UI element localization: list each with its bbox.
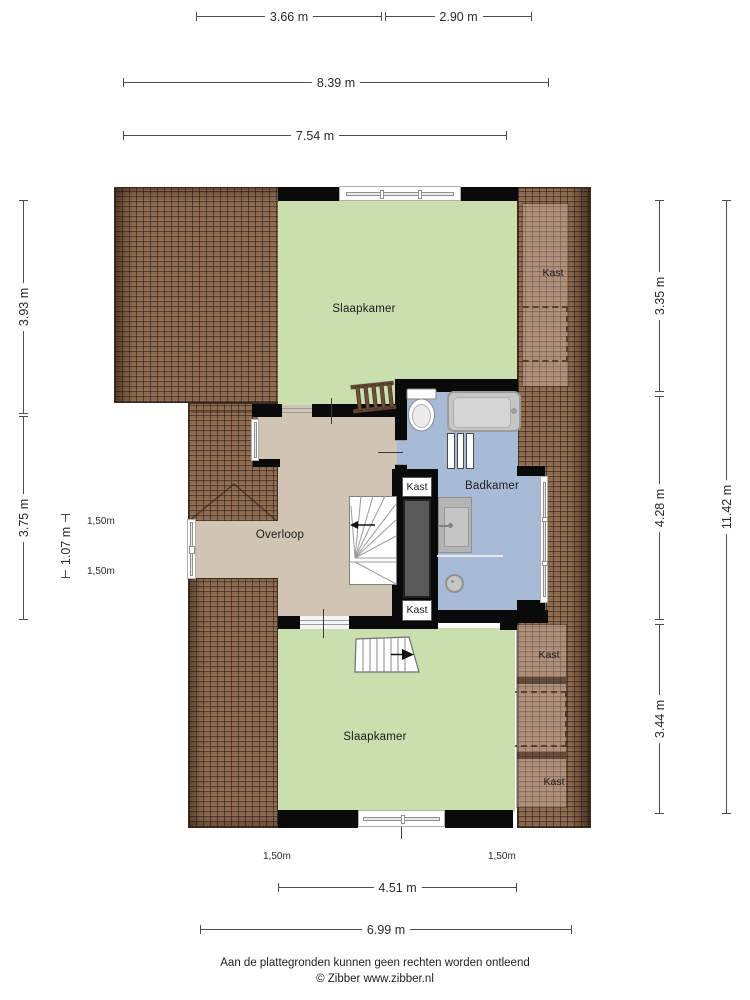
wall-top-left-segment <box>278 187 340 201</box>
dimension-right-3: 3.44 m <box>655 624 664 814</box>
height-marker: 1,50m <box>87 516 115 527</box>
dimension-left-2: 3.75 m <box>19 416 28 620</box>
dimension-label: 6.99 m <box>362 923 410 937</box>
window-landing-left <box>187 519 196 579</box>
window-divider <box>401 815 405 824</box>
dimension-right-2: 4.28 m <box>655 396 664 620</box>
dimension-label: 4.51 m <box>373 881 421 895</box>
radiator-bar <box>457 433 465 469</box>
door-sill <box>282 408 312 409</box>
dimension-label: 3.75 m <box>17 494 31 542</box>
dimension-label: 2.90 m <box>434 10 482 24</box>
wall-bottom-left-segment <box>278 810 358 828</box>
radiator-bar <box>447 433 455 469</box>
window-top <box>339 186 461 201</box>
dimension-bottom-2: 6.99 m <box>200 925 572 934</box>
closet-right-upper-label: Kast <box>529 649 569 661</box>
window-frame <box>346 192 454 196</box>
window-divider <box>542 517 548 522</box>
door-sill <box>282 412 312 413</box>
closet-divider <box>517 752 566 759</box>
wall-landing-bedroom2-a <box>278 616 300 629</box>
dimension-top-4: 7.54 m <box>123 131 507 140</box>
closet-dashed-outline-bottom <box>511 691 567 747</box>
door-sill <box>395 440 407 441</box>
dimension-label: 3.93 m <box>17 283 31 331</box>
window-bathroom-right <box>540 476 548 603</box>
dimension-bottom-1: 4.51 m <box>278 883 517 892</box>
dimension-label: 8.39 m <box>312 76 360 90</box>
height-marker: 1,50m <box>488 851 516 862</box>
height-marker: 1,50m <box>263 851 291 862</box>
door-marker <box>378 452 403 453</box>
roof-area-top-left <box>114 187 280 403</box>
dimension-label: 1.07 m <box>59 522 73 570</box>
bedroom-bottom-label: Slaapkamer <box>315 731 435 743</box>
closet-column-top-label: Kast <box>403 481 431 493</box>
shower-head <box>445 574 464 593</box>
dimension-left-1: 3.93 m <box>19 200 28 414</box>
dimension-label: 3.66 m <box>265 10 313 24</box>
landing-label: Overloop <box>240 529 320 541</box>
bedroom-top-label: Slaapkamer <box>304 303 424 315</box>
door-sill-bedroom2 <box>300 616 349 629</box>
window-frame <box>543 482 546 597</box>
radiator <box>447 433 474 469</box>
floorplan-canvas: Kast Kast <box>0 0 750 1000</box>
shower-head-center <box>451 580 454 583</box>
bedroom-top-floor <box>278 198 517 390</box>
wall-stub-bath-window-top <box>517 466 545 476</box>
bathtub-tap <box>511 408 517 414</box>
closet-box-top: Kast <box>402 477 432 497</box>
wall-stub-bedroom2-right <box>500 616 517 630</box>
dimension-left-3: 1.07 m <box>61 514 70 578</box>
window-divider <box>418 190 422 199</box>
dimension-top-3: 8.39 m <box>123 78 549 87</box>
window-divider <box>380 190 384 199</box>
window-handle <box>189 546 195 554</box>
window-bottom <box>358 810 445 827</box>
door-sill <box>395 464 407 465</box>
bathroom-label: Badkamer <box>452 480 532 492</box>
window-landing-notch <box>251 419 259 461</box>
dimension-label: 7.54 m <box>291 129 339 143</box>
window-divider <box>542 561 548 566</box>
closet-divider <box>517 677 566 684</box>
bathtub-basin <box>453 397 511 428</box>
staircase-main <box>349 496 397 585</box>
dimension-label: 3.35 m <box>653 272 667 320</box>
shower-screen-line <box>437 555 503 557</box>
dimension-top-1: 3.66 m <box>196 12 382 21</box>
closet-box-bottom: Kast <box>402 600 432 621</box>
footer-credit: © Zibber www.zibber.nl <box>0 973 750 985</box>
door-sill <box>300 620 349 621</box>
dimension-right-4: 11.42 m <box>722 200 731 814</box>
wall-bathroom-bottom <box>437 610 548 623</box>
window-marker <box>401 827 402 839</box>
footer-disclaimer: Aan de plattegronden kunnen geen rechten… <box>0 957 750 969</box>
staircase-attic <box>353 635 421 675</box>
window-frame <box>254 422 257 459</box>
dimension-right-1: 3.35 m <box>655 200 664 392</box>
door-marker <box>331 398 332 424</box>
dimension-label: 4.28 m <box>653 484 667 532</box>
closet-column-bottom-label: Kast <box>403 604 431 616</box>
toilet <box>404 388 439 434</box>
loft-ladder <box>349 377 399 420</box>
wall-bedroom1-landing-a <box>252 404 282 417</box>
closet-right-lower-label: Kast <box>534 776 574 788</box>
closet-dashed-outline-top <box>513 306 568 362</box>
bathtub <box>447 391 521 432</box>
wall-bottom-right-segment <box>445 810 513 828</box>
wall-top-right-segment <box>460 187 518 201</box>
wall-landing-bedroom2-b <box>349 616 397 629</box>
washbasin-spout <box>439 525 448 527</box>
radiator-bar <box>466 433 474 469</box>
height-marker: 1,50m <box>87 566 115 577</box>
dimension-label: 3.44 m <box>653 695 667 743</box>
washbasin-tap <box>448 523 453 528</box>
roof-area-bottom-left <box>188 578 278 828</box>
washbasin <box>438 497 472 553</box>
door-sill <box>300 624 349 625</box>
dimension-top-2: 2.90 m <box>385 12 532 21</box>
closet-top-right-label: Kast <box>533 267 573 279</box>
dimension-label: 11.42 m <box>720 480 734 534</box>
door-marker <box>323 609 324 638</box>
closet-box-dark <box>403 499 431 598</box>
